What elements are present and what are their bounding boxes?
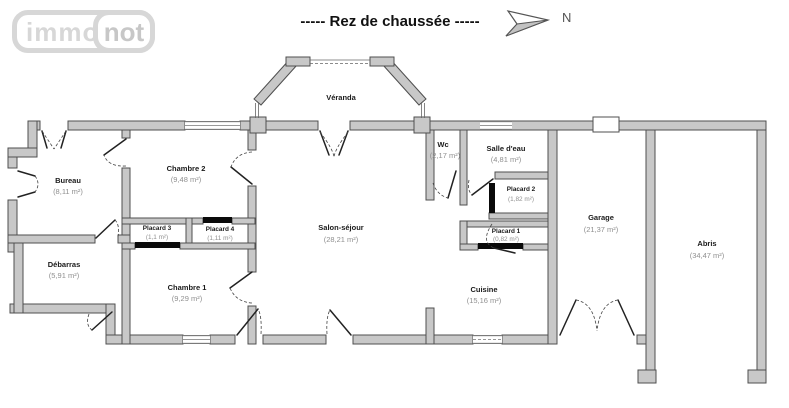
floor-plan-drawing: N Bureau (8,11 m²) Débarras (5,91 m²) Ch… bbox=[0, 0, 789, 408]
wc-label: Wc bbox=[437, 140, 448, 149]
placard1-area: (0,82 m²) bbox=[493, 236, 519, 243]
cuisine-label: Cuisine bbox=[470, 285, 497, 294]
north-label: N bbox=[562, 10, 571, 25]
debarras-area: (5,91 m²) bbox=[49, 271, 80, 280]
wc-area: (2,17 m²) bbox=[430, 151, 461, 160]
chambre1-area: (9,29 m²) bbox=[172, 294, 203, 303]
north-arrow: N bbox=[506, 10, 571, 36]
debarras-label: Débarras bbox=[48, 260, 81, 269]
placard3-area: (1,1 m²) bbox=[146, 234, 168, 241]
chambre2-label: Chambre 2 bbox=[167, 164, 206, 173]
veranda-label: Véranda bbox=[326, 93, 356, 102]
abris-label: Abris bbox=[697, 239, 716, 248]
placard1-label: Placard 1 bbox=[492, 228, 521, 235]
placard3-label: Placard 3 bbox=[143, 225, 172, 232]
garage-label: Garage bbox=[588, 213, 614, 222]
walls bbox=[8, 121, 766, 383]
bureau-label: Bureau bbox=[55, 176, 81, 185]
salle-eau-label: Salle d'eau bbox=[487, 144, 526, 153]
cuisine-area: (15,16 m²) bbox=[467, 296, 502, 305]
placard2-label: Placard 2 bbox=[507, 186, 536, 193]
chambre1-label: Chambre 1 bbox=[168, 283, 207, 292]
garage-area: (21,37 m²) bbox=[584, 225, 619, 234]
placard2-area: (1,82 m²) bbox=[508, 196, 534, 203]
salle-eau-area: (4,81 m²) bbox=[491, 155, 522, 164]
chambre2-area: (9,48 m²) bbox=[171, 175, 202, 184]
bureau-area: (8,11 m²) bbox=[53, 187, 83, 196]
floor-plan-page: immo not ----- Rez de chaussée ----- bbox=[0, 0, 789, 408]
salon-label: Salon-séjour bbox=[318, 223, 364, 232]
abris-area: (34,47 m²) bbox=[690, 251, 725, 260]
placard4-label: Placard 4 bbox=[206, 226, 235, 233]
salon-area: (28,21 m²) bbox=[324, 235, 359, 244]
placard4-area: (1,11 m²) bbox=[207, 235, 232, 242]
